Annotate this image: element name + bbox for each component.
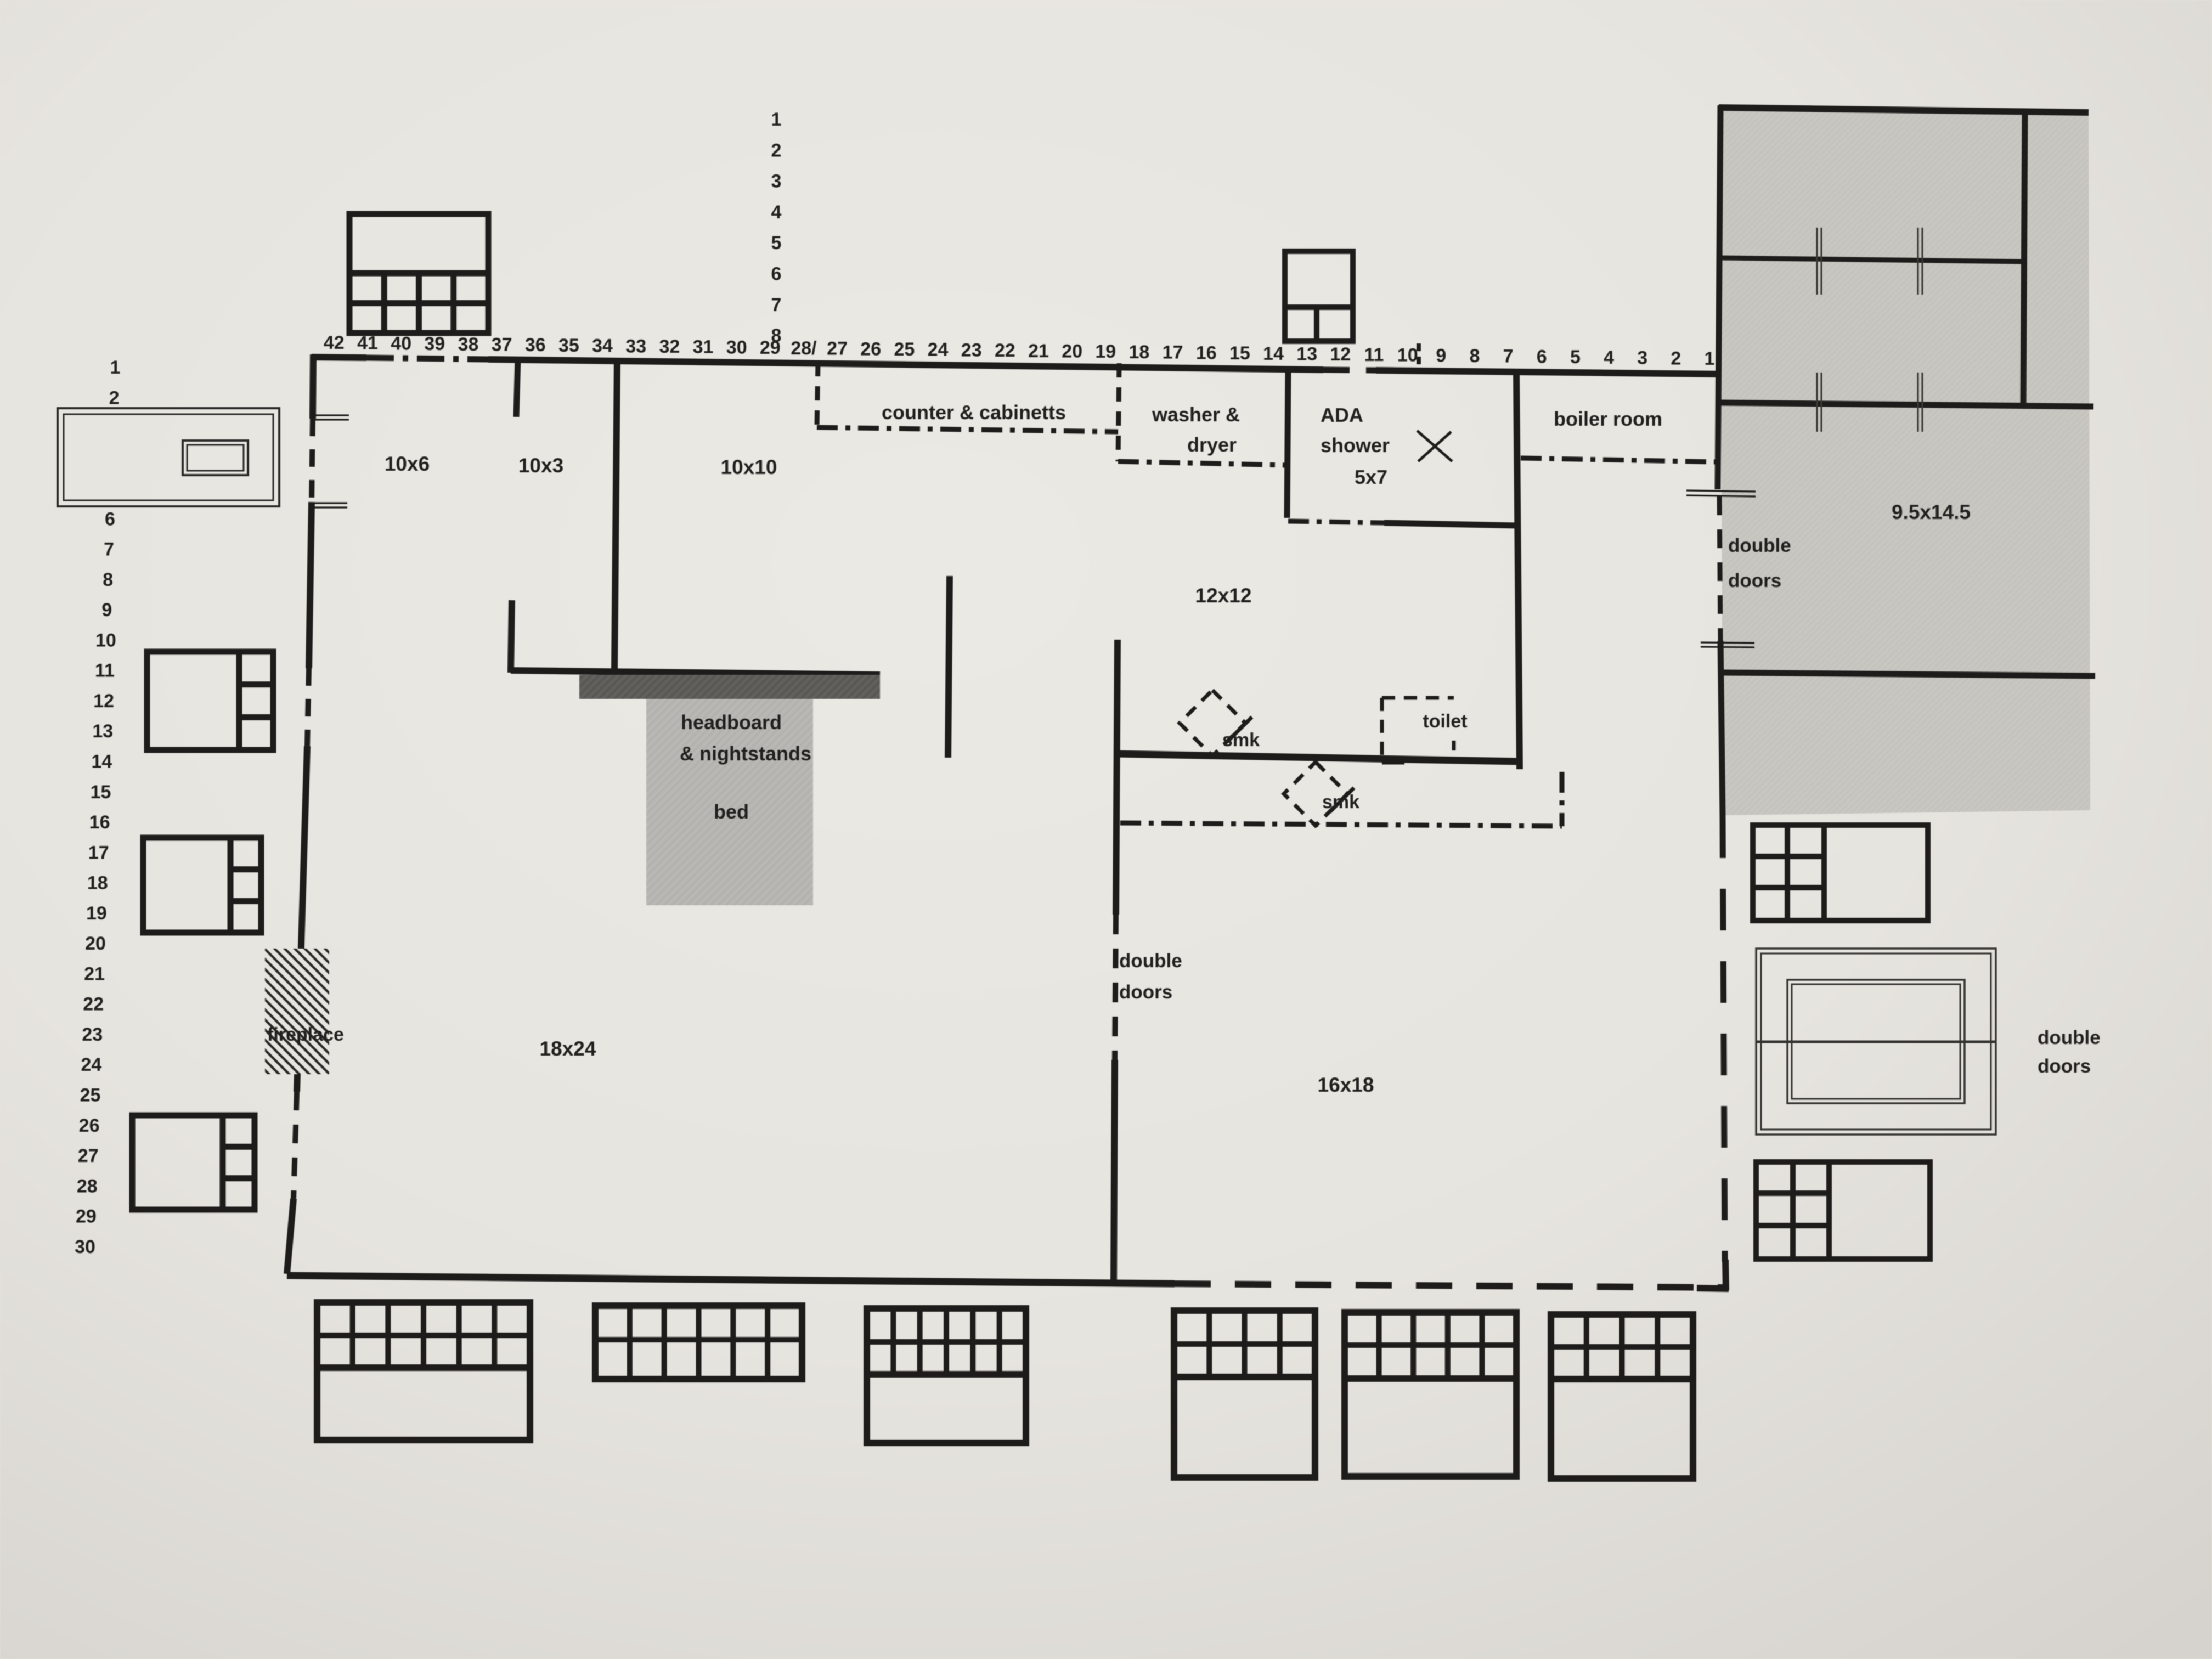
svg-text:31: 31	[693, 337, 714, 358]
svg-text:24: 24	[81, 1054, 101, 1075]
svg-text:6: 6	[105, 509, 115, 529]
svg-text:33: 33	[625, 336, 646, 357]
svg-text:toilet: toilet	[1423, 711, 1467, 732]
svg-text:dryer: dryer	[1187, 433, 1237, 456]
svg-text:38: 38	[458, 334, 479, 355]
svg-text:9: 9	[101, 600, 112, 620]
svg-text:16: 16	[89, 812, 110, 833]
svg-text:fireplace: fireplace	[267, 1024, 344, 1045]
svg-text:28: 28	[77, 1176, 98, 1197]
svg-text:8: 8	[1469, 346, 1480, 366]
svg-text:15: 15	[91, 782, 111, 803]
svg-text:40: 40	[391, 333, 411, 354]
svg-text:36: 36	[525, 335, 546, 356]
svg-text:32: 32	[659, 336, 680, 357]
svg-text:20: 20	[85, 933, 106, 954]
svg-text:14: 14	[91, 752, 112, 772]
svg-text:23: 23	[961, 340, 982, 360]
svg-text:7: 7	[104, 539, 114, 560]
svg-text:shower: shower	[1321, 434, 1390, 456]
svg-text:4: 4	[771, 202, 782, 223]
svg-text:25: 25	[894, 339, 915, 360]
svg-text:30: 30	[726, 337, 747, 358]
svg-text:2: 2	[109, 387, 120, 408]
svg-text:17: 17	[1163, 342, 1183, 363]
svg-text:13: 13	[92, 721, 113, 742]
svg-text:23: 23	[82, 1024, 103, 1045]
svg-text:13: 13	[1296, 344, 1317, 365]
svg-text:2: 2	[771, 140, 782, 161]
svg-text:& nightstands: & nightstands	[680, 742, 811, 765]
svg-text:bed: bed	[714, 800, 749, 823]
svg-text:11: 11	[95, 661, 115, 681]
svg-text:doors: doors	[1728, 570, 1781, 591]
svg-text:35: 35	[558, 335, 579, 356]
svg-text:7: 7	[1503, 346, 1514, 367]
svg-text:21: 21	[84, 963, 105, 984]
svg-text:14: 14	[1263, 343, 1284, 364]
svg-text:26: 26	[860, 338, 881, 359]
svg-text:washer &: washer &	[1152, 403, 1240, 426]
svg-text:27: 27	[827, 338, 848, 359]
svg-text:11: 11	[1364, 345, 1384, 365]
svg-text:headboard: headboard	[681, 711, 782, 733]
svg-text:12: 12	[1330, 344, 1351, 365]
svg-text:8: 8	[103, 569, 113, 590]
svg-text:6: 6	[771, 264, 782, 285]
svg-text:ADA: ADA	[1321, 404, 1363, 426]
svg-text:10x3: 10x3	[518, 454, 563, 477]
svg-text:12: 12	[93, 691, 114, 712]
svg-text:39: 39	[424, 334, 445, 354]
svg-text:boiler room: boiler room	[1554, 408, 1662, 430]
svg-text:24: 24	[928, 340, 949, 360]
svg-text:double: double	[1119, 950, 1182, 972]
svg-text:1: 1	[1705, 348, 1715, 369]
svg-text:smk: smk	[1322, 792, 1359, 812]
svg-text:1: 1	[771, 109, 782, 130]
svg-text:21: 21	[1028, 341, 1049, 362]
svg-text:9: 9	[1436, 345, 1446, 366]
svg-text:doors: doors	[1119, 981, 1172, 1003]
svg-text:16x18: 16x18	[1318, 1074, 1374, 1096]
svg-text:5: 5	[771, 233, 782, 253]
svg-text:9.5x14.5: 9.5x14.5	[1892, 501, 1971, 523]
svg-text:22: 22	[995, 340, 1015, 361]
svg-text:22: 22	[83, 994, 104, 1015]
svg-text:10: 10	[95, 630, 116, 651]
svg-text:18: 18	[87, 873, 108, 894]
svg-text:smk: smk	[1222, 730, 1260, 751]
svg-text:3: 3	[1637, 348, 1647, 369]
svg-text:5x7: 5x7	[1355, 466, 1387, 488]
svg-text:3: 3	[771, 171, 782, 192]
svg-text:12x12: 12x12	[1195, 584, 1252, 607]
svg-text:28/: 28/	[791, 338, 817, 359]
svg-text:37: 37	[492, 335, 512, 356]
svg-text:18: 18	[1128, 342, 1149, 363]
svg-text:42: 42	[324, 332, 345, 353]
svg-text:7: 7	[771, 295, 782, 315]
svg-text:8: 8	[771, 325, 782, 346]
svg-text:10x6: 10x6	[385, 453, 430, 475]
svg-text:10x10: 10x10	[721, 456, 777, 478]
svg-text:17: 17	[88, 842, 109, 863]
svg-text:counter & cabinetts: counter & cabinetts	[882, 401, 1066, 424]
svg-text:6: 6	[1537, 347, 1547, 368]
svg-text:double: double	[1728, 535, 1791, 556]
svg-text:1: 1	[110, 357, 121, 378]
svg-text:41: 41	[357, 333, 378, 354]
svg-text:16: 16	[1196, 342, 1217, 363]
svg-text:4: 4	[1604, 347, 1614, 368]
svg-text:doors: doors	[2038, 1056, 2091, 1077]
svg-text:2: 2	[1671, 348, 1681, 369]
svg-text:29: 29	[76, 1206, 97, 1227]
svg-text:18x24: 18x24	[540, 1037, 596, 1060]
svg-text:20: 20	[1062, 341, 1082, 362]
svg-text:34: 34	[592, 336, 613, 357]
svg-text:double: double	[2038, 1027, 2101, 1048]
svg-text:19: 19	[86, 903, 107, 924]
svg-text:26: 26	[79, 1115, 100, 1136]
svg-text:25: 25	[80, 1085, 101, 1106]
svg-text:27: 27	[78, 1145, 99, 1166]
svg-text:5: 5	[1570, 347, 1581, 368]
svg-text:10: 10	[1397, 345, 1418, 366]
svg-text:19: 19	[1095, 341, 1116, 362]
svg-text:15: 15	[1229, 343, 1250, 364]
svg-text:30: 30	[75, 1237, 95, 1257]
